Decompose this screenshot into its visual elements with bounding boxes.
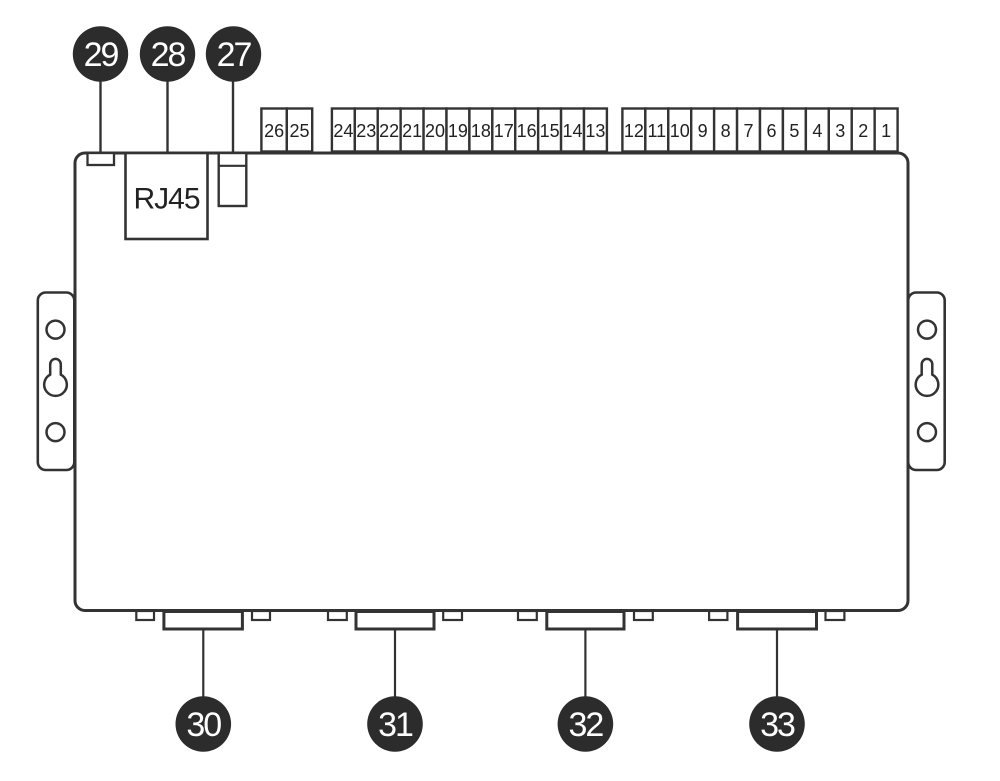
- svg-text:22: 22: [379, 121, 399, 141]
- svg-text:7: 7: [744, 121, 754, 141]
- svg-text:13: 13: [585, 121, 605, 141]
- svg-text:11: 11: [647, 121, 666, 141]
- svg-text:18: 18: [471, 121, 491, 141]
- svg-text:17: 17: [494, 121, 514, 141]
- svg-text:33: 33: [760, 706, 795, 744]
- svg-text:15: 15: [540, 121, 560, 141]
- svg-text:20: 20: [425, 121, 445, 141]
- svg-text:2: 2: [858, 121, 868, 141]
- svg-text:16: 16: [517, 121, 537, 141]
- svg-text:3: 3: [835, 121, 845, 141]
- svg-text:12: 12: [624, 121, 644, 141]
- svg-text:31: 31: [378, 706, 413, 744]
- svg-text:6: 6: [766, 121, 776, 141]
- svg-text:30: 30: [186, 706, 221, 744]
- svg-text:24: 24: [333, 121, 353, 141]
- svg-text:9: 9: [698, 121, 708, 141]
- svg-text:23: 23: [356, 121, 376, 141]
- svg-text:27: 27: [217, 36, 252, 74]
- svg-text:10: 10: [670, 121, 690, 141]
- svg-text:19: 19: [448, 121, 468, 141]
- svg-text:26: 26: [264, 121, 284, 141]
- svg-text:14: 14: [563, 121, 583, 141]
- svg-text:RJ45: RJ45: [133, 183, 199, 216]
- svg-text:28: 28: [151, 36, 186, 74]
- svg-text:25: 25: [289, 121, 309, 141]
- svg-text:5: 5: [789, 121, 799, 141]
- svg-text:8: 8: [721, 121, 731, 141]
- svg-text:29: 29: [84, 36, 119, 74]
- svg-text:32: 32: [568, 706, 603, 744]
- svg-text:1: 1: [881, 121, 891, 141]
- svg-text:21: 21: [402, 121, 422, 141]
- svg-text:4: 4: [812, 121, 822, 141]
